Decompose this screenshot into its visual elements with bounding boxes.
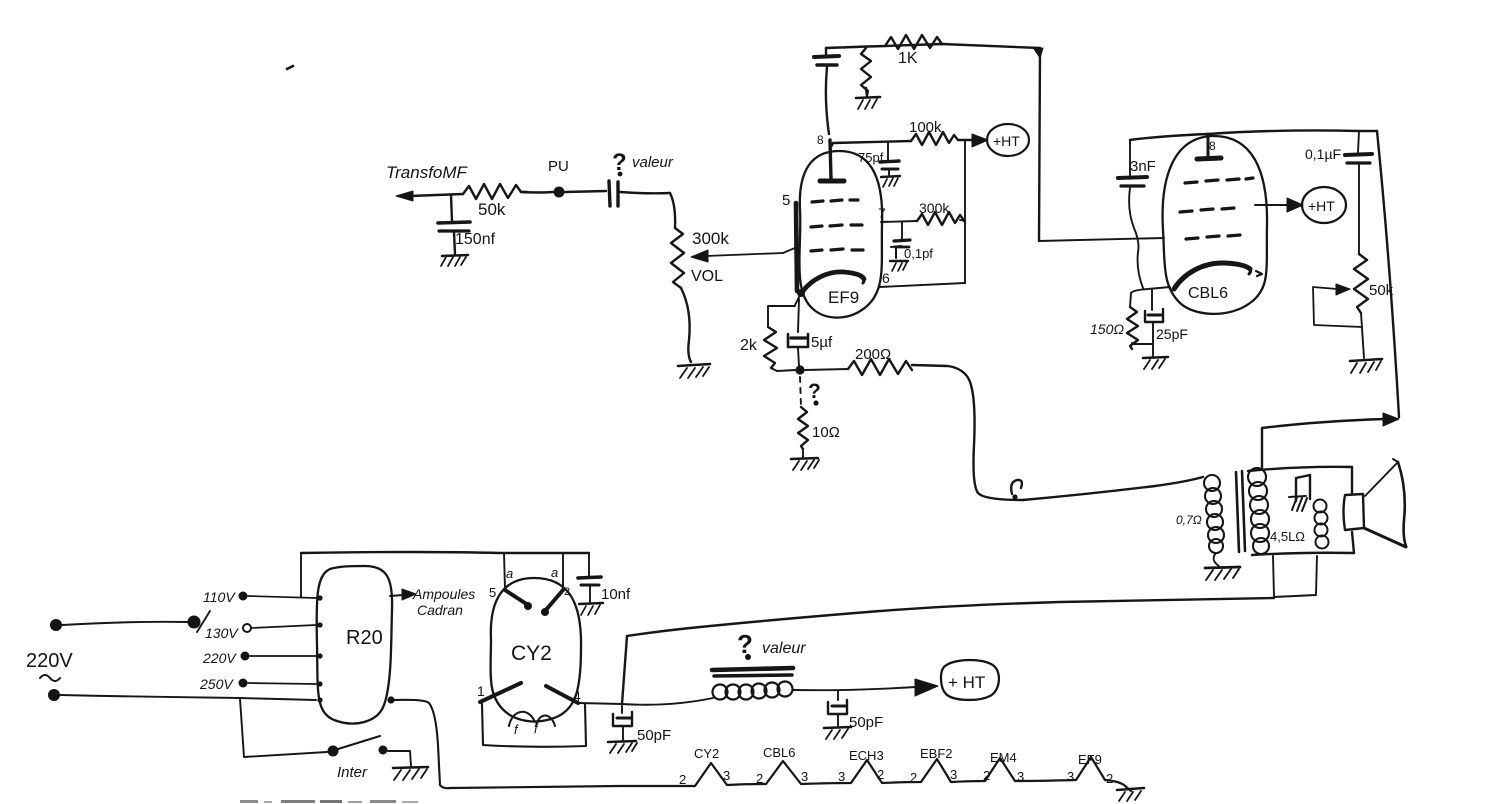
svg-text:2: 2 <box>983 768 990 783</box>
svg-text:2: 2 <box>756 771 763 786</box>
svg-text:2: 2 <box>679 772 686 787</box>
svg-text:TransfoMF: TransfoMF <box>386 163 469 182</box>
svg-text:110V: 110V <box>203 589 236 605</box>
svg-text:300k: 300k <box>919 200 950 216</box>
svg-text:8: 8 <box>1209 139 1216 153</box>
svg-text:3: 3 <box>1017 769 1024 784</box>
svg-text:+HT: +HT <box>993 133 1020 149</box>
svg-text:0,1pf: 0,1pf <box>904 246 933 261</box>
svg-text:7: 7 <box>878 205 886 221</box>
svg-text:VOL: VOL <box>691 268 723 285</box>
svg-text:220V: 220V <box>26 650 73 672</box>
svg-text:f: f <box>514 722 519 737</box>
svg-text:CBL6: CBL6 <box>1188 285 1228 302</box>
svg-text:4,5LΩ: 4,5LΩ <box>1270 529 1305 544</box>
svg-text:CY2: CY2 <box>694 746 719 761</box>
svg-text:3: 3 <box>950 767 957 782</box>
svg-text:EF9: EF9 <box>828 288 859 307</box>
svg-text:2: 2 <box>877 767 884 782</box>
svg-text:Cadran: Cadran <box>417 602 463 618</box>
svg-text:50pF: 50pF <box>849 714 883 731</box>
svg-text:a: a <box>551 565 558 580</box>
svg-text:150Ω: 150Ω <box>1090 321 1124 337</box>
svg-text:?: ? <box>808 380 821 403</box>
svg-text:Inter: Inter <box>337 764 368 781</box>
svg-text:3: 3 <box>1067 769 1074 784</box>
svg-text:5: 5 <box>489 585 496 600</box>
svg-text:100k: 100k <box>909 119 942 136</box>
svg-text:3: 3 <box>838 769 845 784</box>
svg-text:6: 6 <box>882 270 890 286</box>
svg-text:10Ω: 10Ω <box>812 424 840 441</box>
svg-text:EM4: EM4 <box>990 750 1017 765</box>
svg-text:10nf: 10nf <box>601 586 631 603</box>
svg-text:300k: 300k <box>692 229 729 248</box>
svg-text:+ HT: + HT <box>948 673 985 692</box>
svg-text:2: 2 <box>910 770 917 785</box>
svg-text:50pF: 50pF <box>637 727 671 744</box>
svg-text:8: 8 <box>817 133 824 147</box>
svg-text:150nf: 150nf <box>455 231 496 248</box>
svg-text:PU: PU <box>548 158 569 175</box>
svg-text:130V: 130V <box>205 625 239 641</box>
svg-text:CBL6: CBL6 <box>763 745 796 760</box>
svg-text:2: 2 <box>564 586 570 598</box>
svg-text:?: ? <box>737 629 753 659</box>
svg-text:valeur: valeur <box>762 640 806 657</box>
svg-text:2: 2 <box>1106 771 1113 786</box>
svg-text:+HT: +HT <box>1308 198 1335 214</box>
svg-text:valeur: valeur <box>632 154 674 171</box>
svg-text:50k: 50k <box>478 200 506 219</box>
svg-text:25pF: 25pF <box>1156 326 1188 342</box>
svg-text:Ampoules: Ampoules <box>412 586 475 602</box>
svg-text:R20: R20 <box>346 627 383 649</box>
svg-text:1: 1 <box>477 683 485 699</box>
svg-text:CY2: CY2 <box>511 642 552 665</box>
svg-text:250V: 250V <box>199 676 234 692</box>
svg-text:0,1µF: 0,1µF <box>1305 146 1341 162</box>
svg-text:0,7Ω: 0,7Ω <box>1176 513 1202 527</box>
svg-text:3nF: 3nF <box>1130 158 1156 175</box>
svg-text:a: a <box>506 566 513 581</box>
svg-text:f: f <box>534 721 539 736</box>
svg-text:ECH3: ECH3 <box>849 748 884 763</box>
svg-text:200Ω: 200Ω <box>855 346 891 363</box>
svg-text:5: 5 <box>782 192 790 209</box>
svg-text:1K: 1K <box>898 50 918 67</box>
svg-text:3: 3 <box>801 769 808 784</box>
svg-text:3: 3 <box>723 768 730 783</box>
svg-text:EBF2: EBF2 <box>920 746 953 761</box>
svg-text:2k: 2k <box>740 337 758 354</box>
svg-text:220V: 220V <box>202 650 237 666</box>
svg-text:5µf: 5µf <box>811 334 833 351</box>
svg-text:EF9: EF9 <box>1078 752 1102 767</box>
